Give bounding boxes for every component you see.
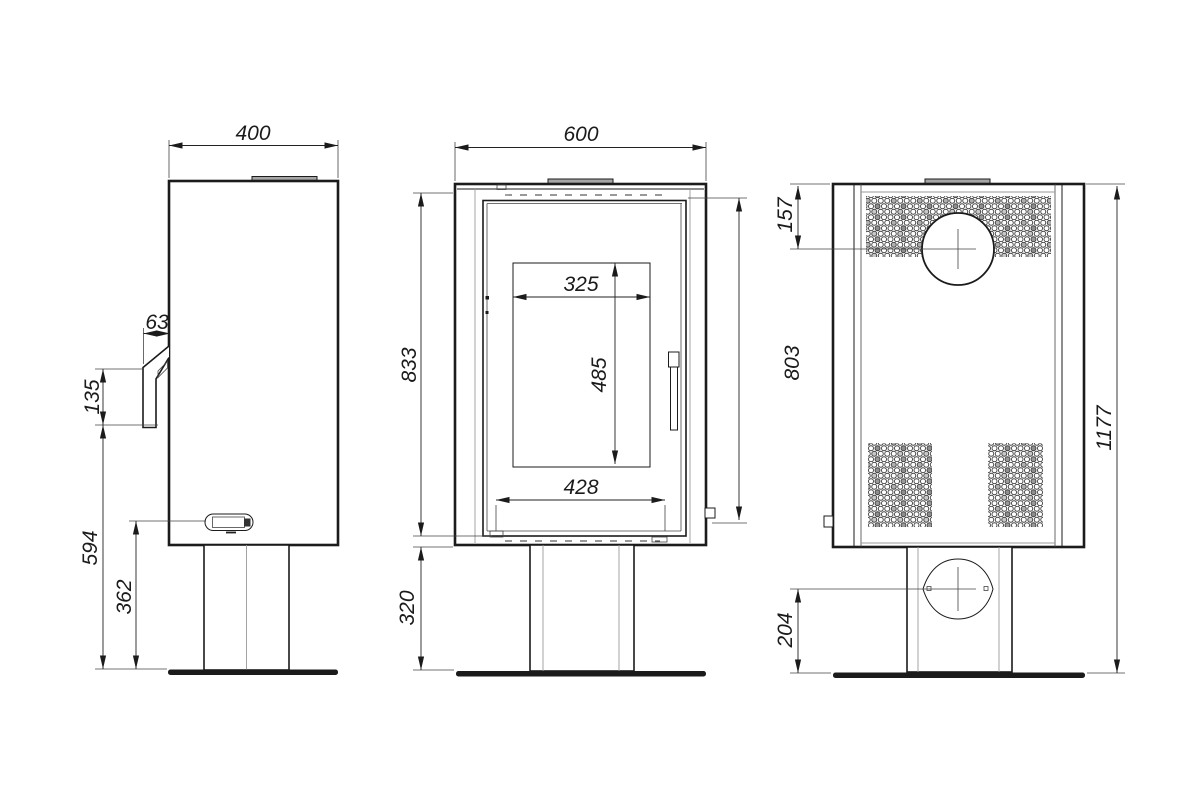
- technical-drawing-canvas: 400 63 135 594 362: [0, 0, 1200, 800]
- side-latch-rear: [824, 516, 833, 527]
- front-view: 600 833 320 325 485 428 803: [396, 123, 804, 677]
- dim-inlet-center-height: 204: [774, 612, 797, 648]
- dim-pedestal-height: 320: [396, 590, 419, 625]
- dim-front-width: 600: [563, 123, 598, 146]
- dim-control-to-floor: 362: [113, 579, 136, 614]
- dim-handle-to-floor: 594: [79, 530, 102, 565]
- perforation-bottom-left-rear: [868, 443, 932, 527]
- door-handle-side: [143, 346, 169, 428]
- stove-dimension-drawing: 400 63 135 594 362: [0, 0, 1200, 800]
- base-plate-front: [456, 671, 706, 677]
- door-handle-pivot-front: [669, 352, 680, 367]
- dim-glass-width: 325: [563, 273, 598, 296]
- side-latch-front: [705, 508, 715, 518]
- hinge-mark-lower: [486, 311, 489, 314]
- dim-body-height: 833: [398, 347, 421, 382]
- side-view: 400 63 135 594 362: [79, 122, 338, 675]
- rear-view: 157 204 1177: [774, 179, 1125, 678]
- dim-handle-height: 135: [81, 379, 104, 414]
- pedestal-front: [530, 545, 634, 671]
- perforation-bottom-right-rear: [988, 443, 1043, 527]
- stove-body-side: [169, 181, 338, 545]
- dim-firebox-width: 428: [563, 476, 598, 499]
- hinge-mark-upper: [486, 296, 490, 300]
- dim-flue-center-offset: 157: [774, 196, 797, 232]
- base-plate-rear: [833, 673, 1085, 679]
- base-plate-side: [168, 670, 338, 676]
- dim-side-width: 400: [235, 122, 270, 145]
- dim-total-height: 1177: [1093, 404, 1116, 450]
- air-control-knob-side: [244, 519, 251, 527]
- door-handle-bar-front: [671, 367, 678, 430]
- dim-handle-depth: 63: [145, 311, 169, 334]
- dim-door-height: 803: [781, 345, 804, 380]
- dim-glass-height: 485: [588, 357, 611, 392]
